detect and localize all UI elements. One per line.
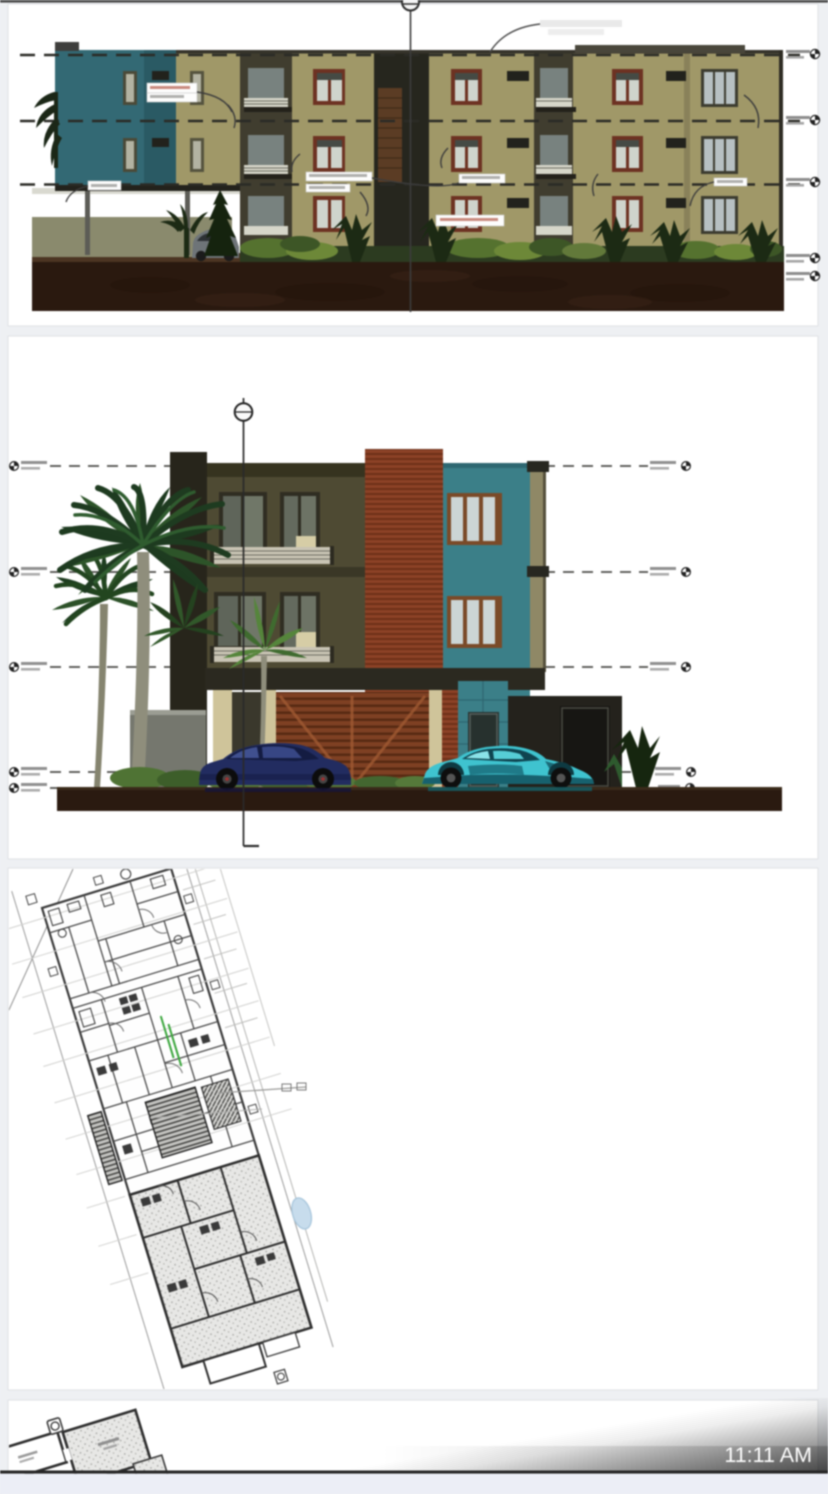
svg-text:11:11 AM: 11:11 AM: [724, 1443, 812, 1467]
